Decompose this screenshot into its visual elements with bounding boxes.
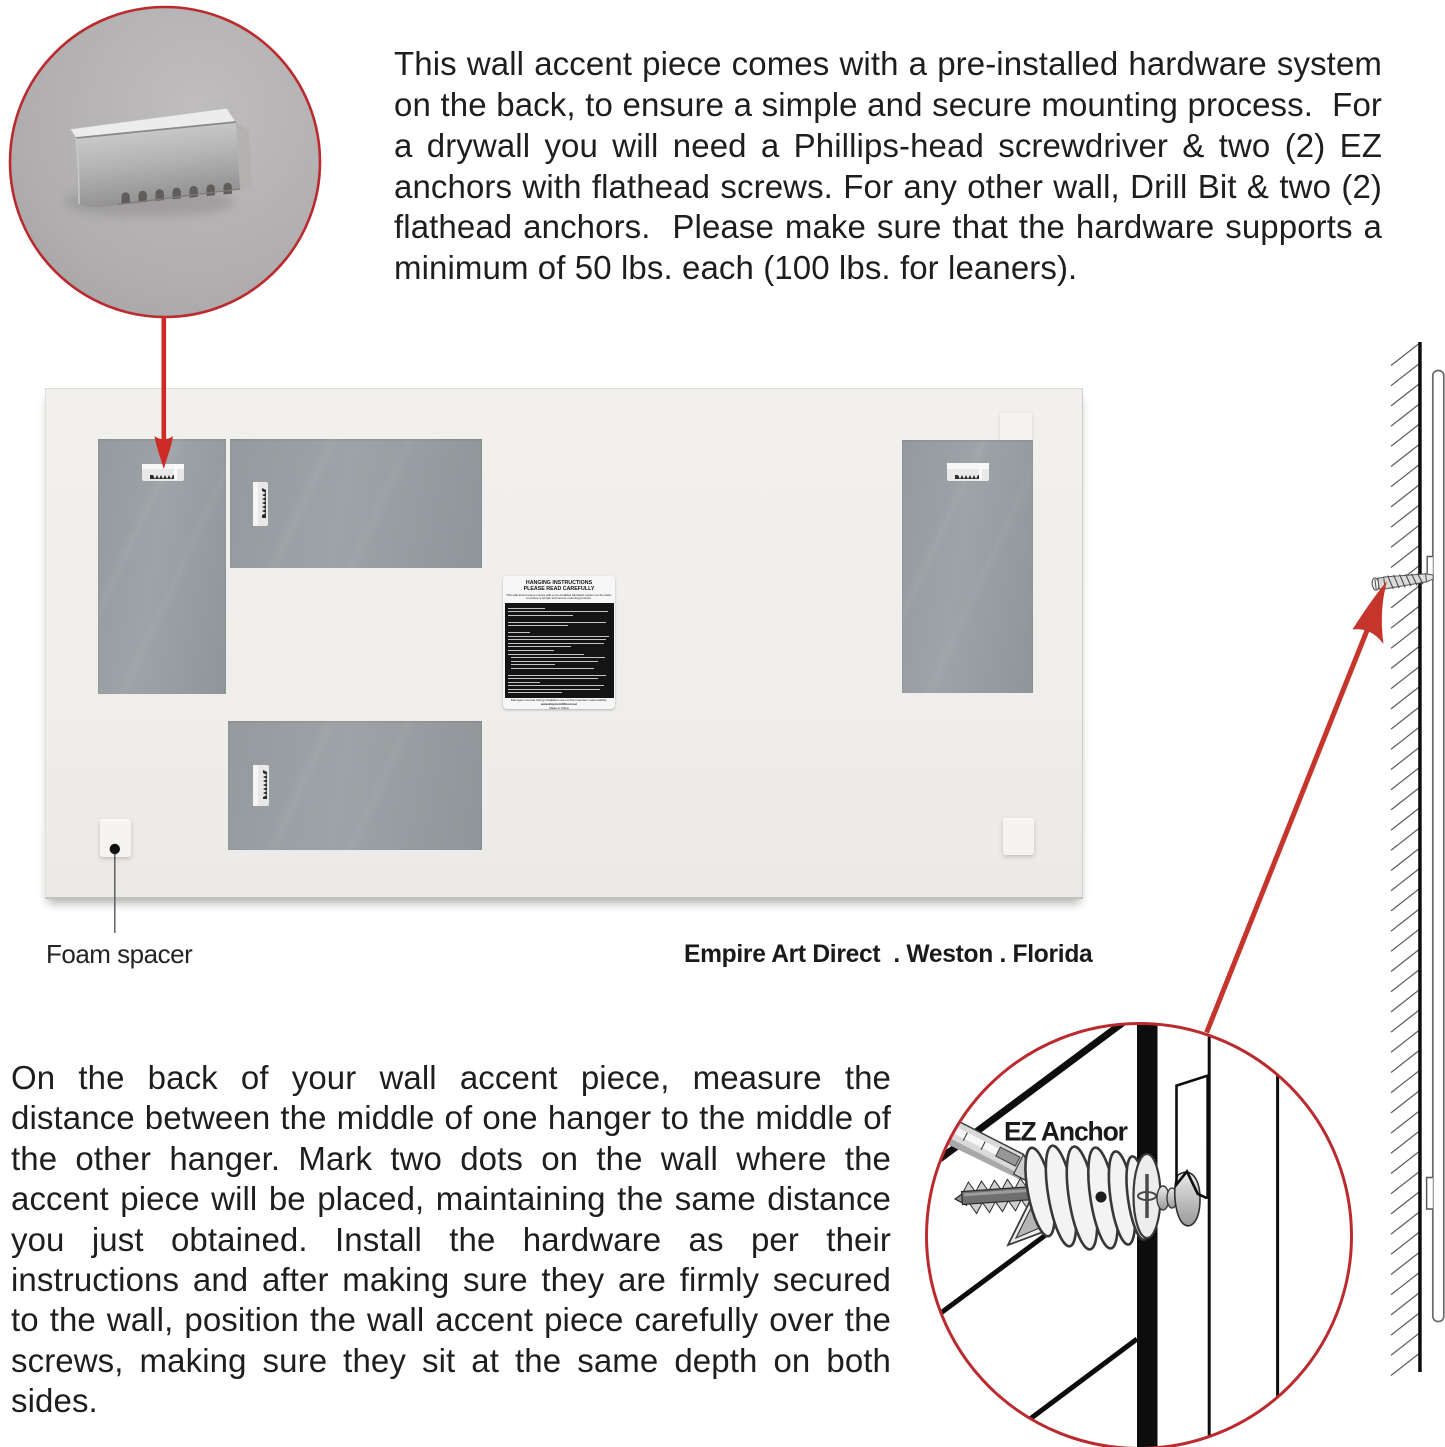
svg-text:EZ Anchor: EZ Anchor — [1004, 1117, 1128, 1147]
